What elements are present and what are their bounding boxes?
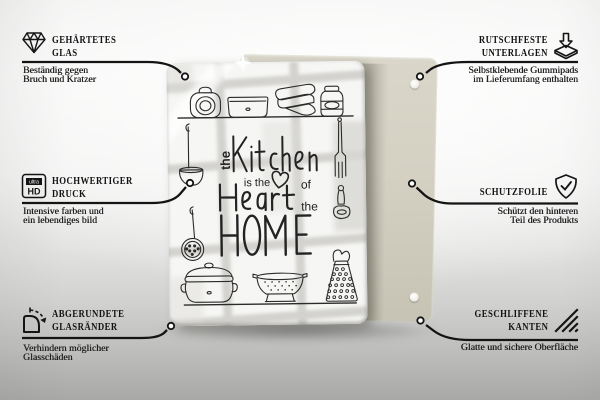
svg-text:HD: HD — [28, 187, 41, 197]
svg-text:ultra: ultra — [29, 180, 39, 186]
